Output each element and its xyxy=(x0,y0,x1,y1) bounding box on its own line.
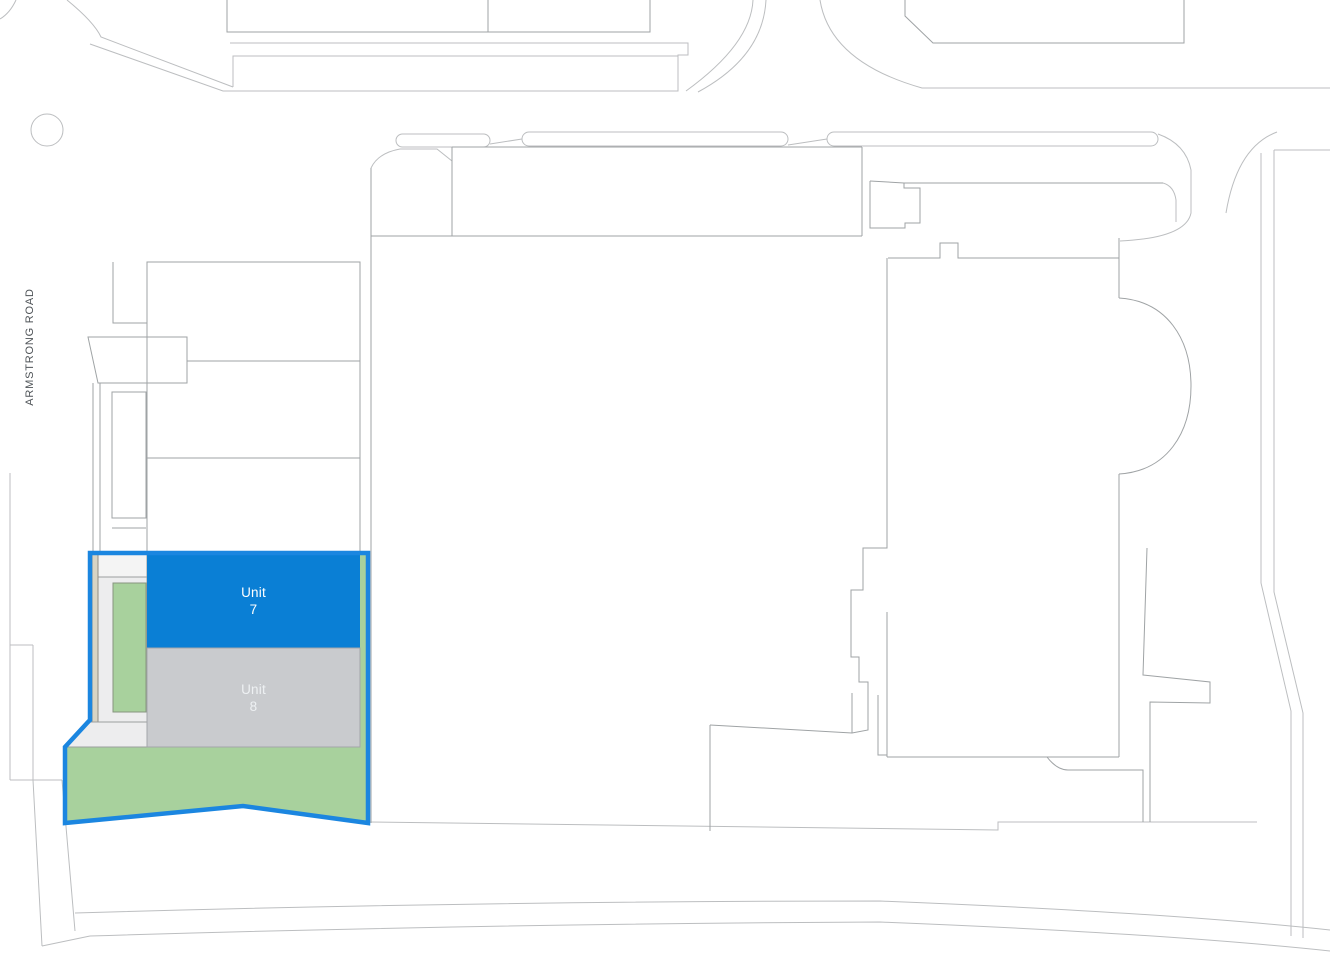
terrace-side-court xyxy=(112,392,146,518)
terrace-entrance-canopy xyxy=(88,337,187,383)
roundabout-island xyxy=(31,114,63,146)
verge-capsule-1 xyxy=(396,134,490,147)
parcel-service-bay xyxy=(98,553,147,577)
junction-arc-west xyxy=(686,0,753,91)
top-road-kerb xyxy=(233,56,678,87)
east-building-dock xyxy=(1143,548,1210,822)
bottom-road-north-edge xyxy=(75,901,1330,930)
terrace-side-steps xyxy=(112,518,146,528)
north-building xyxy=(227,0,650,32)
east-building-site-edge xyxy=(870,181,1163,183)
terrace-side-strip xyxy=(93,383,100,553)
verge-link-2 xyxy=(788,139,827,145)
ne-corner-curl-inner xyxy=(1163,183,1176,222)
east-building-bay xyxy=(878,695,887,755)
ne-corner-curl-outer xyxy=(1120,134,1191,241)
site-entrance-curve xyxy=(371,149,400,168)
ne-entrance-arc xyxy=(1226,132,1277,213)
east-building-top xyxy=(888,243,1119,258)
verge-capsule-3 xyxy=(827,132,1158,146)
east-road-east-edge xyxy=(1274,150,1303,938)
site-plan xyxy=(0,0,1330,960)
sw-parcel xyxy=(10,473,62,780)
south-parcel-boundary xyxy=(368,822,1257,830)
verge-link-1 xyxy=(490,139,522,144)
terrace-side-bay xyxy=(113,262,147,323)
east-building-yard xyxy=(1047,757,1143,822)
road-label: ARMSTRONG ROAD xyxy=(24,288,36,406)
junction-arc-west-inner xyxy=(698,0,766,92)
east-building-apse xyxy=(1119,298,1191,474)
site-entrance-chamfer xyxy=(400,149,452,161)
unit-7-region[interactable] xyxy=(147,553,360,648)
bottom-road-south-edge xyxy=(90,922,1330,951)
site-plan-canvas: Unit 7 Unit 8 ARMSTRONG ROAD xyxy=(0,0,1330,960)
junction-arc-east xyxy=(820,0,1330,88)
parcel-kerb-strip xyxy=(92,553,98,722)
east-building-west-lines xyxy=(710,612,887,831)
verge-capsule-2 xyxy=(522,132,788,146)
unit-terrace xyxy=(147,262,360,553)
east-road-west-edge xyxy=(1261,153,1291,936)
road-corner-arc xyxy=(0,0,16,19)
east-building-nw-notch xyxy=(870,181,920,228)
east-building-west-steps xyxy=(710,258,887,733)
highlighted-parcel[interactable] xyxy=(65,553,368,823)
parcel-garden-strip xyxy=(113,583,146,712)
north-east-building xyxy=(905,0,1184,43)
armstrong-road-edge xyxy=(67,0,233,87)
centre-building xyxy=(371,147,862,236)
unit-8-region[interactable] xyxy=(147,648,360,747)
